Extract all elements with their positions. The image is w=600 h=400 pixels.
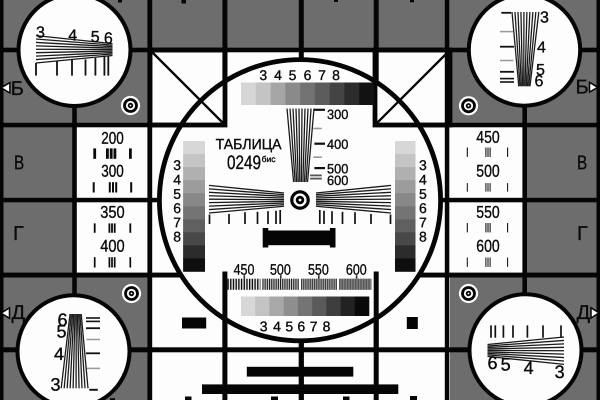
svg-text:6: 6: [487, 353, 497, 373]
svg-text:4: 4: [537, 39, 546, 56]
svg-text:6: 6: [104, 30, 113, 47]
svg-text:Б: Б: [11, 78, 24, 100]
svg-text:ТАБЛИЦА: ТАБЛИЦА: [216, 137, 282, 153]
svg-text:В: В: [14, 152, 24, 174]
svg-text:8: 8: [323, 318, 331, 334]
svg-text:3: 3: [259, 67, 267, 83]
svg-text:4: 4: [273, 318, 281, 334]
svg-text:3: 3: [36, 24, 45, 41]
svg-text:В: В: [577, 152, 587, 174]
svg-text:600: 600: [476, 237, 499, 256]
svg-text:600: 600: [327, 173, 348, 188]
svg-text:бис: бис: [262, 154, 277, 164]
svg-text:4: 4: [274, 67, 282, 83]
svg-text:4: 4: [524, 358, 534, 378]
svg-text:200: 200: [101, 129, 124, 148]
svg-text:400: 400: [100, 237, 124, 256]
svg-text:5: 5: [289, 67, 297, 83]
svg-text:6: 6: [534, 73, 543, 90]
svg-text:4: 4: [68, 27, 77, 44]
svg-text:3: 3: [555, 362, 565, 382]
svg-text:Д: Д: [11, 302, 25, 324]
svg-text:4: 4: [54, 344, 64, 364]
svg-text:Д: Д: [576, 302, 590, 324]
svg-text:3: 3: [50, 375, 60, 395]
svg-text:0249: 0249: [227, 152, 261, 174]
svg-text:Б: Б: [575, 76, 588, 98]
svg-text:350: 350: [100, 203, 124, 222]
svg-text:7: 7: [318, 67, 326, 83]
svg-text:5: 5: [56, 321, 66, 341]
svg-text:500: 500: [476, 162, 499, 181]
svg-text:8: 8: [419, 228, 427, 244]
svg-text:300: 300: [101, 162, 124, 181]
svg-text:6: 6: [297, 318, 305, 334]
svg-text:Г: Г: [13, 223, 24, 245]
svg-text:8: 8: [332, 67, 340, 83]
svg-text:550: 550: [476, 203, 499, 222]
svg-text:6: 6: [304, 67, 312, 83]
svg-text:3: 3: [260, 318, 268, 334]
svg-text:5: 5: [501, 354, 511, 374]
svg-text:8: 8: [173, 228, 181, 244]
svg-text:5: 5: [91, 29, 100, 46]
svg-text:400: 400: [327, 137, 348, 152]
svg-text:7: 7: [310, 318, 318, 334]
svg-text:450: 450: [476, 128, 499, 147]
svg-text:3: 3: [540, 9, 549, 26]
svg-text:300: 300: [327, 107, 348, 122]
svg-text:Г: Г: [577, 223, 588, 245]
svg-text:5: 5: [285, 318, 293, 334]
